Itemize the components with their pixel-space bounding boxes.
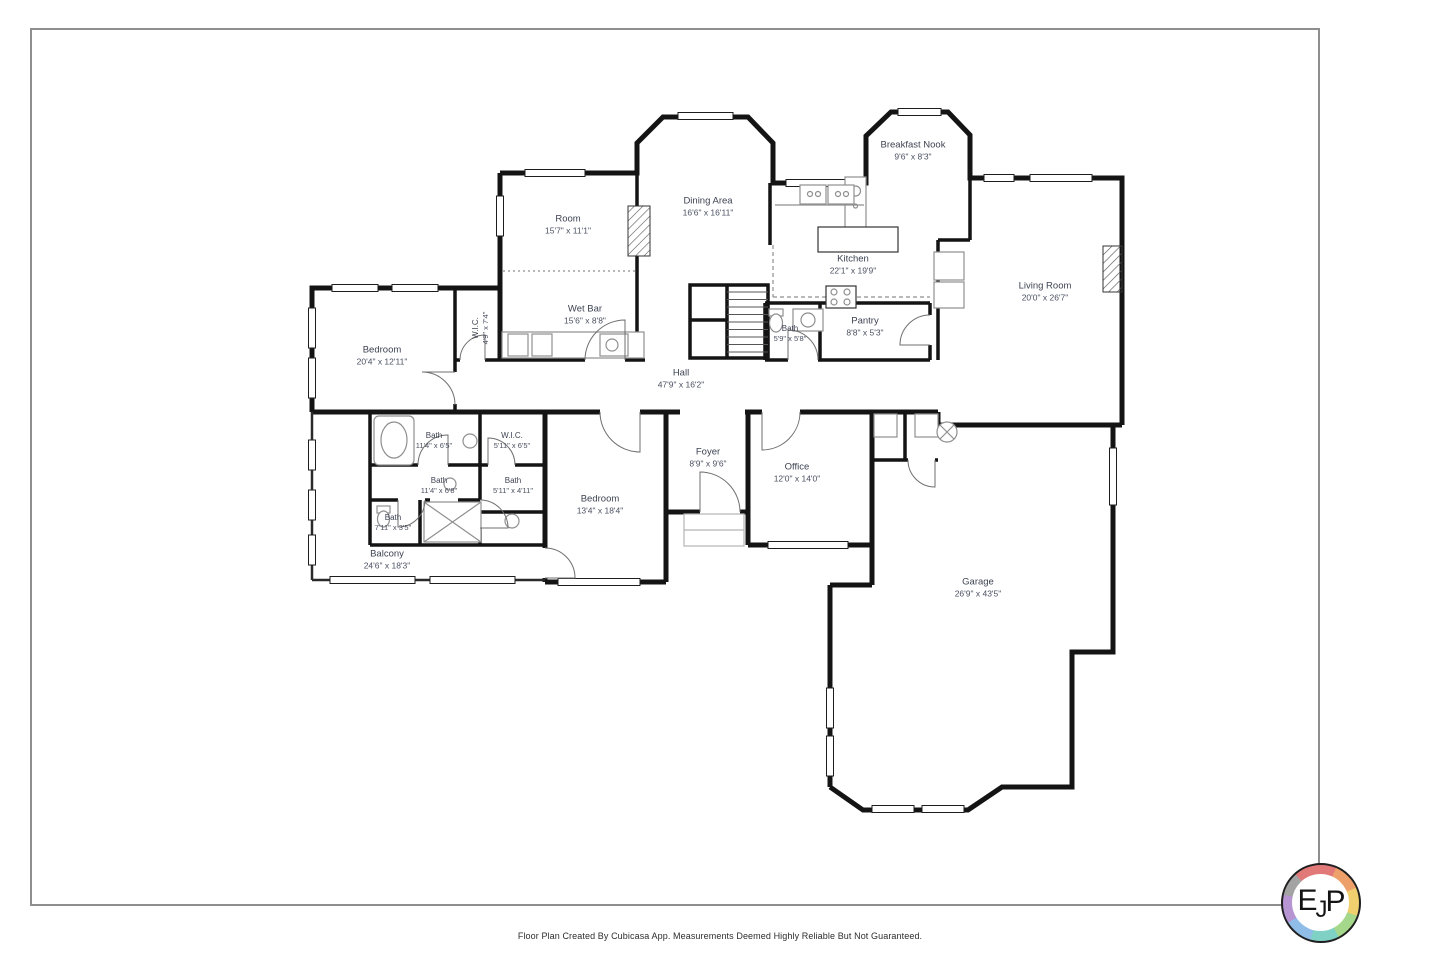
cooktop [826, 286, 856, 308]
logo-inner-circle: E J P [1292, 874, 1349, 931]
logo-letters: E J P [1297, 886, 1343, 920]
sink [444, 478, 456, 490]
appliance [915, 414, 938, 437]
footer-disclaimer: Floor Plan Created By Cubicasa App. Meas… [0, 931, 1440, 941]
refrigerator [934, 252, 964, 280]
floor-plan-page: Breakfast Nook 9'6" x 8'3" Dining Area 1… [0, 0, 1440, 959]
sink [606, 339, 618, 351]
balcony-railing [312, 412, 545, 580]
floor-plan-drawing [0, 0, 1440, 959]
windows [309, 109, 1117, 813]
exterior-walls [312, 112, 1122, 810]
logo-letter-e: E [1297, 884, 1315, 918]
ejp-logo: E J P [1281, 863, 1361, 943]
logo-letter-p: P [1326, 885, 1344, 919]
staircase [727, 292, 768, 352]
sink [463, 434, 477, 448]
logo-letter-j: J [1316, 896, 1326, 924]
cabinet [934, 282, 964, 308]
appliance [874, 414, 897, 437]
kitchen-island [818, 227, 898, 252]
